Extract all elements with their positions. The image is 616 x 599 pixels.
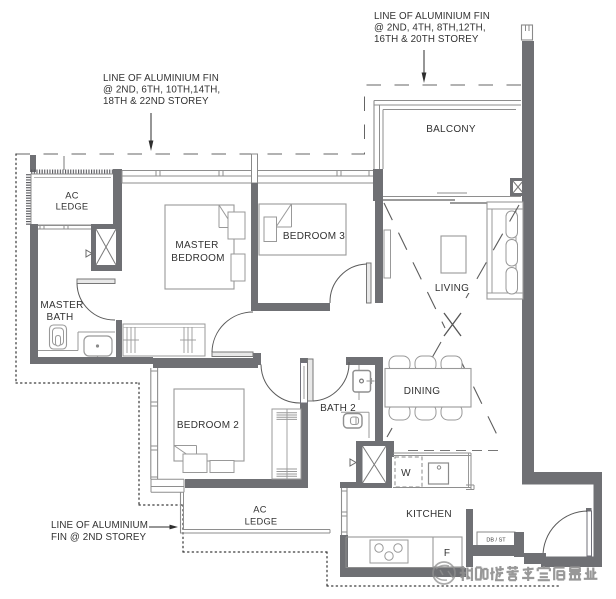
svg-text:18TH & 22ND STOREY: 18TH & 22ND STOREY xyxy=(103,96,209,107)
svg-text:16TH & 20TH STOREY: 16TH & 20TH STOREY xyxy=(374,34,479,45)
svg-text:BATH 2: BATH 2 xyxy=(320,403,356,414)
svg-text:BEDROOM 2: BEDROOM 2 xyxy=(177,420,239,431)
svg-text:BATH: BATH xyxy=(47,312,74,323)
svg-text:BALCONY: BALCONY xyxy=(426,124,476,135)
svg-text:DINING: DINING xyxy=(404,386,441,397)
svg-text:LEDGE: LEDGE xyxy=(56,202,89,212)
svg-text:LINE OF ALUMINIUM FIN: LINE OF ALUMINIUM FIN xyxy=(103,73,219,84)
svg-text:BEDROOM: BEDROOM xyxy=(171,253,224,264)
svg-text:FIN @ 2ND STOREY: FIN @ 2ND STOREY xyxy=(51,532,147,543)
svg-text:MASTER: MASTER xyxy=(40,300,83,311)
svg-text:MASTER: MASTER xyxy=(175,240,218,251)
svg-text:LINE OF ALUMINIUM: LINE OF ALUMINIUM xyxy=(51,520,148,531)
svg-text:@ 2ND, 6TH, 10TH,14TH,: @ 2ND, 6TH, 10TH,14TH, xyxy=(103,85,220,96)
svg-text:LEDGE: LEDGE xyxy=(245,517,278,527)
svg-text:LIVING: LIVING xyxy=(435,283,469,294)
svg-text:AC: AC xyxy=(65,191,78,201)
svg-text:AC: AC xyxy=(253,505,266,515)
svg-text:@ 2ND, 4TH, 8TH,12TH,: @ 2ND, 4TH, 8TH,12TH, xyxy=(374,23,486,34)
svg-text:KITCHEN: KITCHEN xyxy=(406,509,452,520)
svg-text:LINE OF ALUMINIUM FIN: LINE OF ALUMINIUM FIN xyxy=(374,11,490,22)
svg-text:DB / ST: DB / ST xyxy=(486,538,506,544)
svg-text:BEDROOM 3: BEDROOM 3 xyxy=(283,231,345,242)
svg-text:F: F xyxy=(444,548,450,559)
svg-text:W: W xyxy=(401,468,411,479)
